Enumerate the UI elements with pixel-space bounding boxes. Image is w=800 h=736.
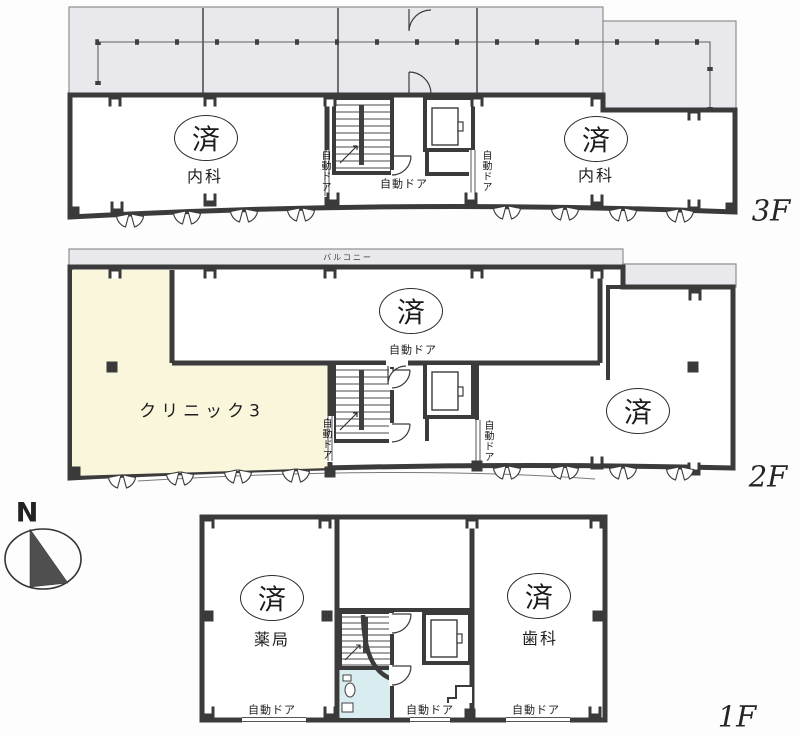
auto-door-label-3f-center: 自動ドア xyxy=(380,179,428,190)
room-name-2f-clinic: クリニック3 xyxy=(139,404,265,421)
auto-door-label-3f-right: 自動ドア xyxy=(480,150,490,192)
auto-door-label-2f-right: 自動ドア xyxy=(482,420,492,462)
auto-door-label-1f-right: 自動ドア xyxy=(512,705,560,716)
elevator-2f xyxy=(425,363,473,417)
auto-door-label-2f-left: 自動ドア xyxy=(320,418,330,460)
floor-plan-3f xyxy=(69,7,737,227)
floor-label-2f: 2F xyxy=(749,463,788,492)
room-name-3f-right: 内科 xyxy=(578,168,614,184)
compass-north-label: N xyxy=(16,500,39,527)
seal-3f-right-room: 済 xyxy=(564,116,628,162)
room-name-1f-dental: 歯科 xyxy=(522,631,558,647)
seal-3f-left-room: 済 xyxy=(174,115,238,161)
seal-2f-upper-room: 済 xyxy=(379,288,443,334)
seal-1f-dental: 済 xyxy=(507,573,571,619)
floor-plan-2f xyxy=(69,249,736,488)
elevator-1f xyxy=(424,613,470,663)
floor-label-1f: 1F xyxy=(718,703,757,732)
elevator-3f xyxy=(425,98,473,150)
seal-2f-right-room: 済 xyxy=(606,388,670,434)
floor-plan-drawing xyxy=(0,0,800,736)
room-name-1f-pharmacy: 薬局 xyxy=(254,632,290,648)
floor-plan-sheet: 済 内科 済 内科 自動ドア 自動ドア 自動ドア 3F バルコニー 済 自動ドア… xyxy=(0,0,800,736)
compass xyxy=(5,529,81,589)
floor-label-3f: 3F xyxy=(752,197,791,226)
room-name-3f-left: 内科 xyxy=(187,169,223,185)
balcony-label: バルコニー xyxy=(323,254,373,262)
auto-door-label-1f-left: 自動ドア xyxy=(248,705,296,716)
auto-door-label-1f-center: 自動ドア xyxy=(406,705,454,716)
auto-door-label-3f-left: 自動ドア xyxy=(319,150,329,192)
seal-1f-pharmacy: 済 xyxy=(240,575,304,621)
auto-door-label-2f-top: 自動ドア xyxy=(389,345,437,356)
